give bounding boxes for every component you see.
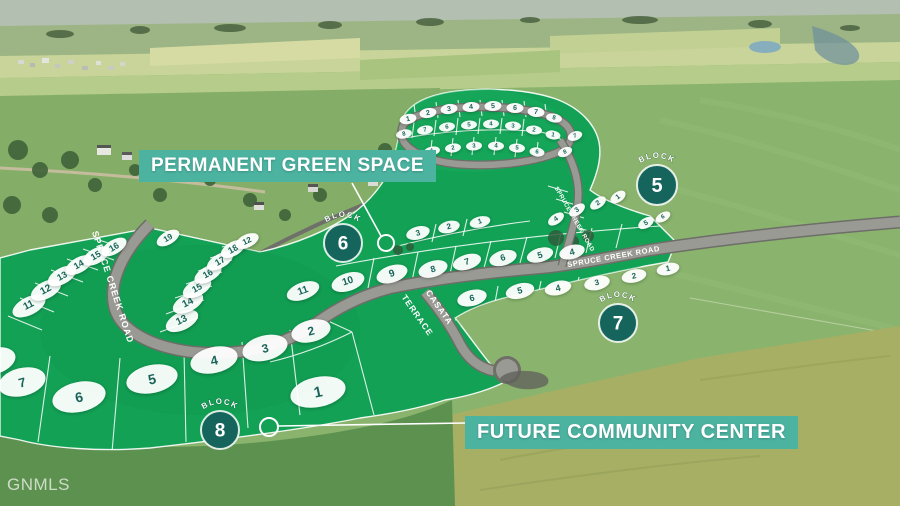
lot-marker: 3 (405, 224, 432, 243)
lot-marker: 8 (395, 128, 413, 140)
lot-number: 1 (477, 218, 482, 226)
lot-marker: 1 (545, 129, 561, 140)
lot-marker: 4 (546, 210, 566, 229)
lot-number: 2 (306, 324, 315, 337)
lot-number: 5 (467, 122, 471, 128)
lot-number: 1 (665, 265, 671, 274)
lot-number: 7 (463, 257, 470, 267)
lot-number: 13 (175, 314, 189, 328)
lot-marker: 11 (284, 277, 322, 305)
lot-marker: 1 (656, 261, 681, 278)
lot-marker: 6 (529, 147, 545, 158)
lot-number: 1 (405, 115, 410, 123)
lot-number: 1 (312, 384, 323, 400)
lot-number: 16 (107, 241, 120, 254)
lot-number: 7 (423, 127, 427, 133)
lot-number: 5 (147, 371, 158, 386)
community-center-banner: FUTURE COMMUNITY CENTER (465, 416, 798, 449)
lot-marker: 2 (445, 143, 462, 154)
lot-number: 2 (631, 272, 637, 281)
lot-marker: 6 (456, 287, 489, 310)
lot-marker: 4 (488, 142, 504, 151)
lot-number: 19 (162, 232, 174, 243)
lot-number: 6 (74, 389, 85, 404)
lot-marker: 6 (487, 247, 518, 269)
lot-number: 8 (552, 115, 556, 121)
lot-number: 6 (513, 104, 517, 111)
lot-number: 4 (489, 121, 493, 127)
lot-number: 4 (494, 143, 497, 149)
lot-number: 11 (296, 284, 309, 297)
lot-marker: 3 (466, 141, 483, 151)
lot-marker: 3 (505, 121, 521, 131)
lot-marker: 4 (483, 119, 499, 129)
lot-marker: 6 (654, 209, 672, 225)
lot-marker: 2 (588, 194, 608, 213)
lot-number: 6 (445, 124, 449, 130)
lot-marker: 4 (462, 101, 480, 112)
lot-marker: 5 (636, 214, 656, 231)
lot-number: 3 (260, 341, 269, 354)
green-space-banner: PERMANENT GREEN SPACE (139, 150, 436, 182)
lot-marker: 5 (461, 120, 478, 130)
lot-marker: 2 (620, 267, 647, 285)
lot-marker: 7 (527, 106, 545, 118)
lot-marker: 2 (526, 125, 543, 136)
lot-number: 4 (209, 353, 219, 367)
lot-number: 8 (429, 264, 436, 274)
lot-number: 4 (555, 283, 562, 293)
lot-number: 1 (614, 193, 621, 201)
lot-marker: 1 (468, 214, 491, 230)
lot-marker: 9 (374, 261, 410, 287)
lot-number: 8 (562, 149, 568, 156)
lot-number: 6 (499, 253, 506, 263)
lot-number: 3 (447, 105, 452, 112)
lot-number: 4 (568, 247, 575, 257)
lot-number: 4 (469, 103, 474, 110)
lot-marker: 6 (506, 103, 523, 114)
lot-marker: 7 (451, 251, 483, 274)
lot-marker: 8 (545, 112, 562, 124)
lot-marker: 3 (583, 273, 611, 292)
lot-number: 6 (468, 293, 475, 303)
lot-marker: 5 (124, 360, 181, 398)
lot-number: 7 (17, 375, 27, 389)
lot-marker: 6 (438, 121, 455, 132)
lot-marker: 2 (419, 107, 437, 120)
lot-marker: 19 (154, 226, 182, 250)
lot-number: 5 (516, 286, 523, 296)
lot-number: 3 (594, 279, 600, 288)
lot-marker: 8 (556, 145, 573, 159)
lot-number: 3 (511, 123, 515, 129)
lot-number: 10 (341, 276, 355, 289)
lot-marker: 5 (484, 101, 502, 112)
lot-number: 5 (643, 219, 650, 227)
lot-marker: 5 (504, 280, 536, 302)
lot-number: 3 (415, 229, 421, 238)
lot-number: 8 (402, 131, 407, 138)
lot-marker: 7 (566, 129, 583, 143)
lot-number: 3 (573, 206, 580, 214)
lot-number: 5 (536, 250, 543, 260)
lot-marker: 7 (416, 124, 433, 136)
aerial-plat-map: SPRUCE CREEK ROAD SPRUCE CREEK ROAD SPRU… (0, 0, 900, 506)
lot-number: 5 (515, 145, 519, 151)
lot-marker: 1 (399, 112, 418, 125)
lot-marker: 3 (240, 330, 291, 365)
lot-marker: 4 (188, 342, 241, 378)
lot-marker: 3 (440, 103, 458, 115)
lot-marker: 4 (558, 242, 587, 262)
lot-marker: 2 (437, 219, 461, 236)
lot-number: 4 (552, 215, 559, 223)
lot-number: 11 (22, 299, 36, 313)
watermark: GNMLS (7, 475, 70, 495)
lot-number: 9 (388, 268, 396, 279)
lot-marker: 5 (525, 245, 555, 266)
lot-number: 1 (551, 132, 555, 138)
lot-number: 2 (532, 127, 536, 133)
lot-number: 2 (446, 223, 452, 232)
lot-marker: 2 (289, 315, 333, 346)
lot-marker: 3 (567, 201, 587, 220)
lot-marker: 10 (329, 268, 367, 296)
lot-number: 2 (425, 109, 430, 117)
lot-marker: 4 (543, 278, 572, 298)
lot-number: 6 (535, 149, 539, 155)
lot-marker: 5 (509, 143, 526, 153)
lot-number: 2 (451, 145, 455, 151)
lot-marker: 1 (287, 372, 348, 413)
lot-marker: 8 (416, 257, 449, 281)
lot-number: 7 (572, 133, 577, 140)
lot-number: 2 (594, 199, 601, 207)
lot-number: 7 (534, 108, 539, 115)
lot-number: 3 (472, 143, 476, 149)
lot-marker: 6 (49, 377, 108, 418)
lot-marker: 1 (608, 188, 628, 206)
lot-number: 6 (660, 214, 666, 221)
lot-number: 5 (491, 102, 495, 109)
lot-number: 12 (241, 235, 252, 246)
